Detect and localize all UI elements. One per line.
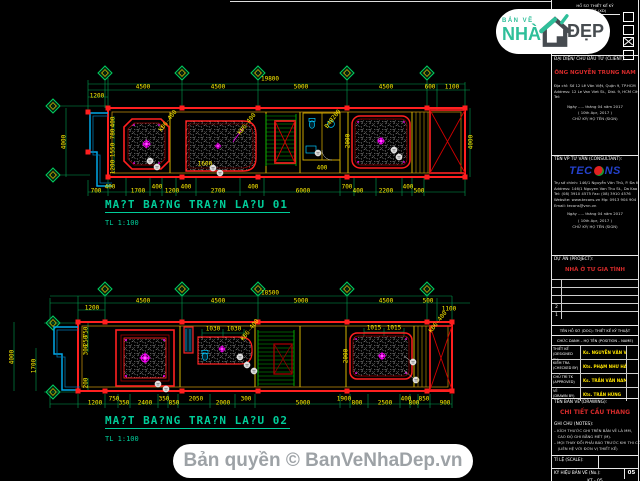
- revision-table: 21: [552, 279, 638, 319]
- revision-row: 2: [552, 303, 638, 311]
- team-row: KIỂM TRA(CHECKED BY) Kts. PHẠM NHƯ HẢI: [552, 359, 638, 373]
- revision-row: 1: [552, 311, 638, 319]
- floor-plans-drawing: [0, 0, 640, 481]
- plan2-title: MA?T BA?NG TRA?N LA?U 02: [105, 414, 290, 429]
- phase-checkbox: [623, 25, 634, 35]
- phase-checkbox-checked: [623, 37, 634, 47]
- revision-row: [552, 279, 638, 287]
- copyright-banner: Bản quyền © BanVeNhaDep.vn: [173, 444, 473, 478]
- notes-header: GHI CHÚ (NOTES):: [552, 421, 638, 428]
- scale-row: TỈ LỆ (SCALE):: [552, 455, 638, 468]
- team-header-1: TÊN HỒ SƠ (DOC): THIẾT KẾ KỸ THUẬT: [552, 326, 638, 335]
- drawing-section: TÊN BẢN VẼ (DRAWING): CHI TIẾT CẦU THANG…: [552, 398, 638, 481]
- project-header: DỰ ÁN (PROJECT):: [552, 256, 638, 263]
- team-section: TÊN HỒ SƠ (DOC): THIẾT KẾ KỸ THUẬT CHỨC …: [552, 325, 638, 398]
- drawing-name: CHI TIẾT CẦU THANG: [552, 409, 638, 416]
- team-name: Kts. PHẠM NHƯ HẢI: [581, 360, 627, 373]
- client-address-en: Address: 12 Le Van Viet St., Dist. 9, HC…: [552, 89, 638, 95]
- tecons-logo-right: NS: [605, 165, 621, 177]
- consultant-website: Website: www.tecons.vn Mp: 0913 904 904: [552, 197, 638, 203]
- consultant-header: TÊN VP TƯ VẤN (CONSULTANT):: [552, 156, 638, 163]
- sheet-number-value: 05: [624, 469, 638, 479]
- tecons-logo: TEC NS: [552, 165, 638, 177]
- revision-row: [552, 295, 638, 303]
- consultant-sign-label: CHỮ KÝ/ HỌ TÊN (SIGN): [552, 224, 638, 230]
- brand-word-dep: ĐẸP: [567, 21, 604, 42]
- tecons-logo-left: TEC: [569, 165, 593, 177]
- scale-label: TỈ LỆ (SCALE):: [552, 456, 599, 468]
- phase-checkbox: [623, 12, 634, 22]
- team-row: CHỦ TRÌ TK(APPROVED) Ks. TRẦN VĂN NAM: [552, 373, 638, 387]
- adjacent-structure: [54, 327, 80, 390]
- copyright-text: Bản quyền © BanVeNhaDep.vn: [183, 450, 462, 472]
- client-section: ĐẠI DIỆN/ CHỦ ĐẦU TƯ (CLIENT): ÔNG NGUYỄ…: [552, 55, 638, 155]
- brand-word-nha: NHÀ: [502, 24, 541, 45]
- sheet-number-row: KÝ HIỆU BẢN VẼ (No.): 05: [552, 468, 638, 479]
- plan1-scale: TL 1:100: [105, 219, 139, 227]
- brand-logo: BẢN VẼ NHÀ ĐẸP: [496, 9, 610, 54]
- consultant-address: Trụ sở chính: 146/1 Nguyễn Văn Thủ, P. Đ…: [552, 180, 638, 186]
- plan2-scale: TL 1:100: [105, 435, 139, 443]
- note-line: – KÍCH THƯỚC GHI TRÊN BẢN VẼ LÀ MM,: [552, 428, 638, 434]
- cad-sheet: 1980045004500500045006001100120070040017…: [0, 0, 640, 481]
- revision-row: [552, 287, 638, 295]
- consultant-email: Email: tecons@vnn.vn: [552, 203, 638, 209]
- project-name: NHÀ Ở TƯ GIA TÌNH: [552, 267, 638, 273]
- team-row: THIẾT KẾ(DESIGNED BY) Ks. NGUYỄN VĂN VIỆ…: [552, 345, 638, 359]
- consultant-section: TÊN VP TƯ VẤN (CONSULTANT): TEC NS Trụ s…: [552, 155, 638, 255]
- client-address: Địa chỉ: Số 12 Lê Văn Việt, Quận 9, TP.H…: [552, 83, 638, 89]
- team-name: Ks. TRẦN VĂN NAM: [581, 374, 627, 387]
- client-header: ĐẠI DIỆN/ CHỦ ĐẦU TƯ (CLIENT):: [552, 56, 638, 63]
- project-section: DỰ ÁN (PROJECT): NHÀ Ở TƯ GIA TÌNH 21: [552, 255, 638, 325]
- plan1-title: MA?T BA?NG TRA?N LA?U 01: [105, 198, 290, 213]
- client-sign-label: CHỮ KÝ/ HỌ TÊN (SIGN): [552, 116, 638, 122]
- note-line: (LIÊN HỆ VỚI ĐƠN VỊ THIẾT KẾ): [552, 446, 638, 452]
- note-line: – MỌI THAY ĐỔI PHẢI BÁO TRƯỚC KHI THI CÔ…: [552, 440, 638, 446]
- team-header-2: CHỨC DANH – HỌ TÊN (POSITION – NAME): [552, 335, 638, 345]
- plan1-linework: [46, 66, 470, 196]
- title-block: HỒ SƠ THIẾT KẾ KỸ THUẬT (XD) ĐẠI DIỆN/ C…: [551, 0, 639, 481]
- sheet-number-label: KÝ HIỆU BẢN VẼ (No.):: [552, 469, 624, 479]
- tecons-logo-circle-icon: [594, 166, 604, 176]
- client-name: ÔNG NGUYỄN TRUNG NAM: [552, 70, 638, 76]
- team-name: Ks. NGUYỄN VĂN VIỆT: [581, 346, 627, 359]
- plan2-linework: [14, 282, 470, 408]
- client-tel: Tel:: [552, 94, 638, 100]
- drawing-header: TÊN BẢN VẼ (DRAWING):: [552, 399, 638, 406]
